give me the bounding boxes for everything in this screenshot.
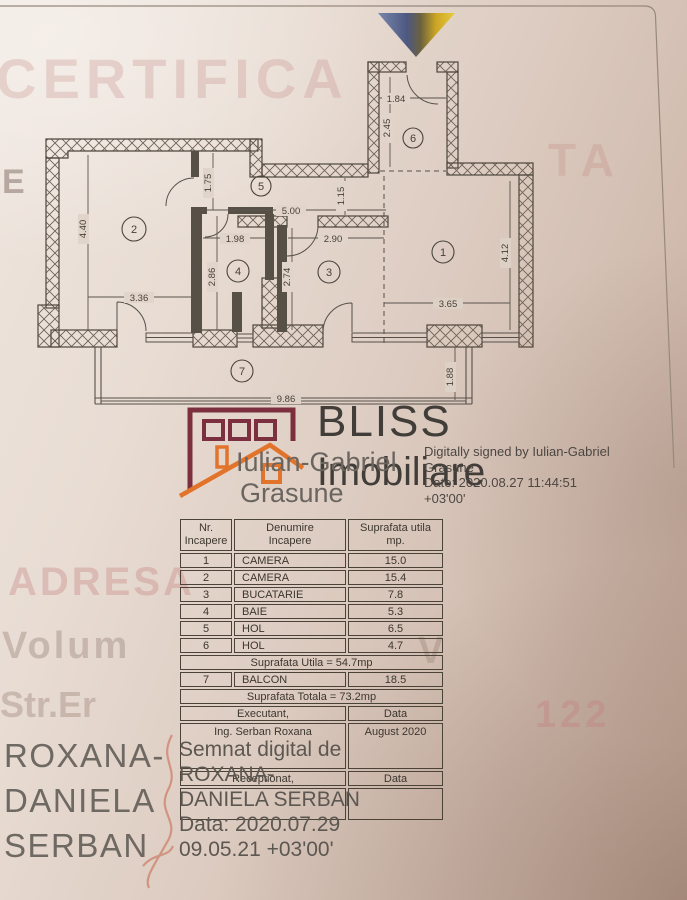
cell-nr: 7	[180, 672, 232, 687]
digital-signature-date: Data: 2020.07.29	[179, 812, 360, 837]
direction-triangle-icon	[378, 13, 455, 57]
room-label-5: 5	[258, 181, 264, 193]
engineer-name-line1: ROXANA-	[4, 733, 165, 778]
cell-nr: 4	[180, 604, 232, 619]
room-label-2: 2	[131, 224, 137, 236]
engineer-digital-signature: Semnat digital de ROXANA- DANIELA SERBAN…	[179, 737, 360, 862]
executant-header-row: Executant, Data	[180, 706, 443, 721]
table-row: 1 CAMERA 15.0	[180, 553, 443, 568]
surveyor-name-stamp: Iulian-Gabriel Grasune	[236, 447, 397, 509]
brand-name: BLISS	[317, 399, 490, 445]
room-label-7: 7	[239, 366, 245, 378]
dim-1-84: 1.84	[387, 94, 406, 105]
digital-signature-line: Grasune	[424, 460, 664, 476]
executant-date: August 2020	[348, 723, 443, 769]
digital-signature-line: Semnat digital de	[179, 737, 360, 762]
dashed-boundaries	[380, 171, 446, 344]
cell-area: 7.8	[348, 587, 443, 602]
total-row: Suprafata Totala = 73.2mp	[180, 689, 443, 704]
dim-4-12: 4.12	[500, 244, 511, 263]
dim-2-45: 2.45	[382, 119, 393, 138]
cell-area: 15.0	[348, 553, 443, 568]
dim-2-90: 2.90	[324, 234, 343, 245]
cell-area: 15.4	[348, 570, 443, 585]
cell-area: 4.7	[348, 638, 443, 653]
total-totala: Suprafata Totala = 73.2mp	[180, 689, 443, 704]
digital-signature-timezone: +03'00'	[424, 491, 664, 507]
scanned-floor-plan-document: CERTIFICA TA E ADRESA Volum V Str.Er 122	[0, 0, 687, 900]
header-suprafata: Suprafata utila mp.	[348, 519, 443, 551]
dim-1-98: 1.98	[226, 234, 245, 245]
table-row: 4 BAIE 5.3	[180, 604, 443, 619]
chimney-icon	[217, 447, 227, 467]
dim-5-00: 5.00	[282, 206, 301, 217]
table-header-row: Nr. Incapere Denumire Incapere Suprafata…	[180, 519, 443, 551]
cell-name: BAIE	[234, 604, 346, 619]
cell-name: BUCATARIE	[234, 587, 346, 602]
dim-9-86: 9.86	[277, 394, 296, 405]
cell-name: CAMERA	[234, 570, 346, 585]
dim-2-74: 2.74	[282, 268, 293, 287]
digital-signature-line: Digitally signed by Iulian-Gabriel	[424, 444, 664, 460]
room-label-3: 3	[326, 267, 332, 279]
digital-signature-date: Date: 2020.08.27 11:44:51	[424, 475, 664, 491]
dim-2-86: 2.86	[207, 268, 218, 287]
surveyor-name-line1: Iulian-Gabriel	[236, 447, 397, 478]
cell-name: CAMERA	[234, 553, 346, 568]
cell-name: BALCON	[234, 672, 346, 687]
data-label: Data	[348, 771, 443, 786]
signature-space-cell	[348, 788, 443, 820]
dim-3-65: 3.65	[439, 299, 458, 310]
table-row-balcony: 7 BALCON 18.5	[180, 672, 443, 687]
subtotal-utila: Suprafata Utila = 54.7mp	[180, 655, 443, 670]
executant-label: Executant,	[180, 706, 346, 721]
dim-1-15: 1.15	[336, 187, 347, 206]
dim-1-75: 1.75	[203, 174, 214, 193]
cell-area: 18.5	[348, 672, 443, 687]
cell-nr: 2	[180, 570, 232, 585]
cell-nr: 6	[180, 638, 232, 653]
cell-name: HOL	[234, 621, 346, 636]
cell-nr: 3	[180, 587, 232, 602]
dim-3-36: 3.36	[130, 293, 149, 304]
cell-nr: 1	[180, 553, 232, 568]
engineer-name-line2: DANIELA	[4, 778, 165, 823]
data-label: Data	[348, 706, 443, 721]
dim-1-88: 1.88	[445, 368, 456, 387]
engineer-name-stamp: ROXANA- DANIELA SERBAN	[4, 733, 165, 868]
table-row: 2 CAMERA 15.4	[180, 570, 443, 585]
digital-signature-line: ROXANA-	[179, 762, 360, 787]
header-nr: Nr. Incapere	[180, 519, 232, 551]
table-row: 6 HOL 4.7	[180, 638, 443, 653]
surveyor-digital-signature: Digitally signed by Iulian-Gabriel Grasu…	[424, 444, 664, 506]
cell-area: 5.3	[348, 604, 443, 619]
cell-name: HOL	[234, 638, 346, 653]
subtotal-row: Suprafata Utila = 54.7mp	[180, 655, 443, 670]
digital-signature-time: 09.05.21 +03'00'	[179, 837, 360, 862]
cell-area: 6.5	[348, 621, 443, 636]
room-label-4: 4	[235, 266, 241, 278]
table-row: 3 BUCATARIE 7.8	[180, 587, 443, 602]
header-denumire: Denumire Incapere	[234, 519, 346, 551]
table-row: 5 HOL 6.5	[180, 621, 443, 636]
digital-signature-line: DANIELA SERBAN	[179, 787, 360, 812]
room-label-1: 1	[440, 247, 446, 259]
engineer-name-line3: SERBAN	[4, 823, 165, 868]
surveyor-name-line2: Grasune	[240, 478, 397, 509]
room-label-6: 6	[410, 133, 416, 145]
dim-4-40: 4.40	[78, 220, 89, 239]
cell-nr: 5	[180, 621, 232, 636]
